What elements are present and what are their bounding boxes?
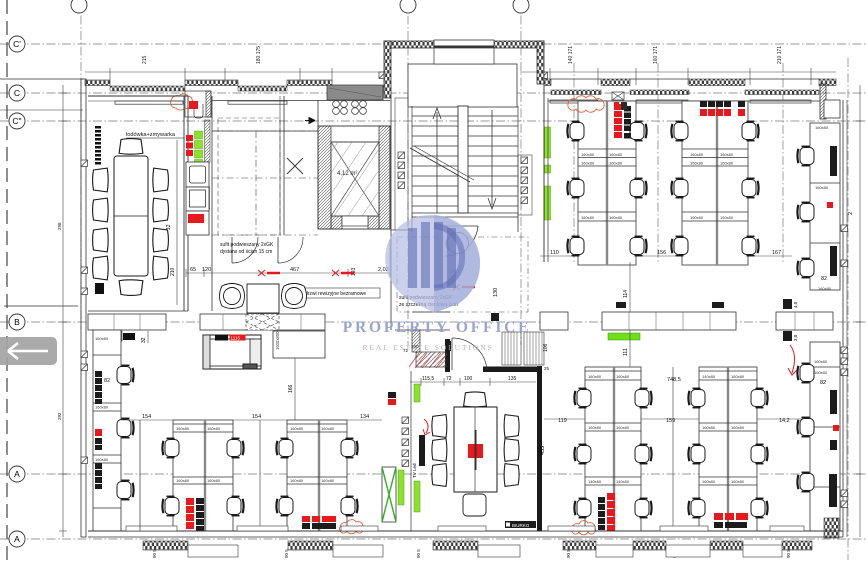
svg-text:167: 167 [772,250,781,256]
svg-text:160x80: 160x80 [814,359,828,364]
svg-text:160 171: 160 171 [653,46,659,64]
svg-text:82: 82 [820,380,826,386]
svg-text:160x80: 160x80 [702,479,716,484]
svg-text:82: 82 [104,378,110,384]
svg-text:748,5: 748,5 [667,377,681,383]
svg-text:160x80: 160x80 [731,479,745,484]
svg-text:BIURKO: BIURKO [512,523,530,528]
svg-text:TV Led: TV Led [412,463,417,478]
svg-text:215: 215 [142,55,148,64]
svg-text:111: 111 [623,348,629,356]
svg-text:lodówka+zmywarka: lodówka+zmywarka [126,132,176,138]
svg-text:160x80: 160x80 [321,478,335,483]
svg-text:90 5: 90 5 [152,549,157,558]
svg-text:140x80: 140x80 [588,479,602,484]
svg-text:100: 100 [464,376,473,382]
svg-text:90 5: 90 5 [786,549,791,558]
svg-text:114: 114 [623,290,629,298]
svg-text:160x80: 160x80 [702,425,716,430]
svg-text:160x80: 160x80 [581,161,595,166]
svg-text:PROPERTY OFFICE: PROPERTY OFFICE [343,319,532,336]
svg-text:160x80: 160x80 [731,425,745,430]
svg-text:160x80: 160x80 [616,425,630,430]
svg-text:12: 12 [166,224,172,230]
svg-text:160x80: 160x80 [95,457,109,462]
svg-text:160x80: 160x80 [321,426,335,431]
svg-text:32: 32 [141,337,147,343]
svg-text:453: 453 [540,446,546,455]
svg-text:90 5: 90 5 [416,549,421,558]
svg-text:160x80: 160x80 [207,426,221,431]
svg-text:160x80: 160x80 [95,405,109,410]
svg-text:154: 154 [252,414,261,420]
svg-text:72: 72 [446,376,452,382]
svg-text:1115: 1115 [231,336,241,341]
svg-text:A: A [14,534,20,544]
svg-text:3,0: 3,0 [793,334,798,341]
svg-text:134: 134 [360,414,369,420]
svg-text:160x80: 160x80 [731,374,745,379]
svg-text:A: A [14,469,20,479]
svg-text:110: 110 [550,250,559,256]
svg-text:REAL ESTATE SOLUTIONS: REAL ESTATE SOLUTIONS [362,343,493,352]
svg-text:160x80: 160x80 [690,152,704,157]
svg-text:4,12 m²: 4,12 m² [337,171,357,177]
svg-text:160x80: 160x80 [176,478,190,483]
svg-text:180 175: 180 175 [256,46,262,64]
svg-text:298: 298 [57,222,62,230]
svg-text:135: 135 [508,376,517,382]
svg-text:160x80: 160x80 [690,161,704,166]
svg-text:130: 130 [493,288,499,297]
svg-text:154: 154 [142,414,151,420]
svg-text:160x80: 160x80 [290,426,304,431]
svg-text:292: 292 [57,412,62,420]
svg-text:sufit podwieszany 2xGK: sufit podwieszany 2xGK [220,242,274,248]
svg-text:C: C [14,88,20,98]
svg-text:2: 2 [848,212,854,215]
svg-text:160x80: 160x80 [609,161,623,166]
svg-text:467: 467 [290,267,299,273]
svg-text:160x80: 160x80 [815,125,829,130]
svg-text:160x80: 160x80 [814,370,828,375]
svg-text:115,5: 115,5 [422,376,434,382]
svg-text:140x80: 140x80 [702,374,716,379]
svg-text:140 171: 140 171 [568,46,574,64]
svg-text:160x80: 160x80 [720,215,734,220]
svg-text:160x80: 160x80 [609,152,623,157]
svg-text:1600x800: 1600x800 [275,331,280,350]
svg-text:160x80: 160x80 [581,215,595,220]
svg-text:120: 120 [202,267,211,273]
svg-text:drzwi rewizyjne bezramowe: drzwi rewizyjne bezramowe [305,291,366,297]
svg-text:B: B [14,317,20,327]
svg-text:90 5: 90 5 [566,549,571,558]
svg-text:140x80: 140x80 [616,479,630,484]
svg-text:160x80: 160x80 [815,185,829,190]
svg-text:160x80: 160x80 [588,374,602,379]
svg-text:65: 65 [190,267,196,273]
svg-text:160x80: 160x80 [690,215,704,220]
svg-text:82: 82 [821,276,827,282]
svg-text:210 171: 210 171 [777,46,783,64]
svg-text:C": C" [12,116,21,126]
svg-text:160x80: 160x80 [818,286,832,291]
svg-text:dystans od ścian 15 cm: dystans od ścian 15 cm [220,249,272,255]
svg-text:C': C' [13,39,21,49]
svg-text:166: 166 [288,384,294,393]
svg-text:25: 25 [544,366,550,371]
svg-text:160x80: 160x80 [588,425,602,430]
svg-text:160x80: 160x80 [720,152,734,157]
svg-text:160x80: 160x80 [290,478,304,483]
svg-text:4,0: 4,0 [793,301,798,308]
svg-text:160x80: 160x80 [609,215,623,220]
svg-text:160x80: 160x80 [720,161,734,166]
svg-text:160x80: 160x80 [95,336,109,341]
svg-text:210: 210 [170,267,176,276]
svg-text:90 5: 90 5 [284,549,289,558]
svg-text:160x80: 160x80 [616,374,630,379]
svg-text:193: 193 [351,267,357,276]
svg-text:156: 156 [657,250,666,256]
svg-text:160x80: 160x80 [207,478,221,483]
svg-text:160x80: 160x80 [581,152,595,157]
svg-text:106: 106 [543,343,549,352]
svg-text:160x80: 160x80 [176,426,190,431]
